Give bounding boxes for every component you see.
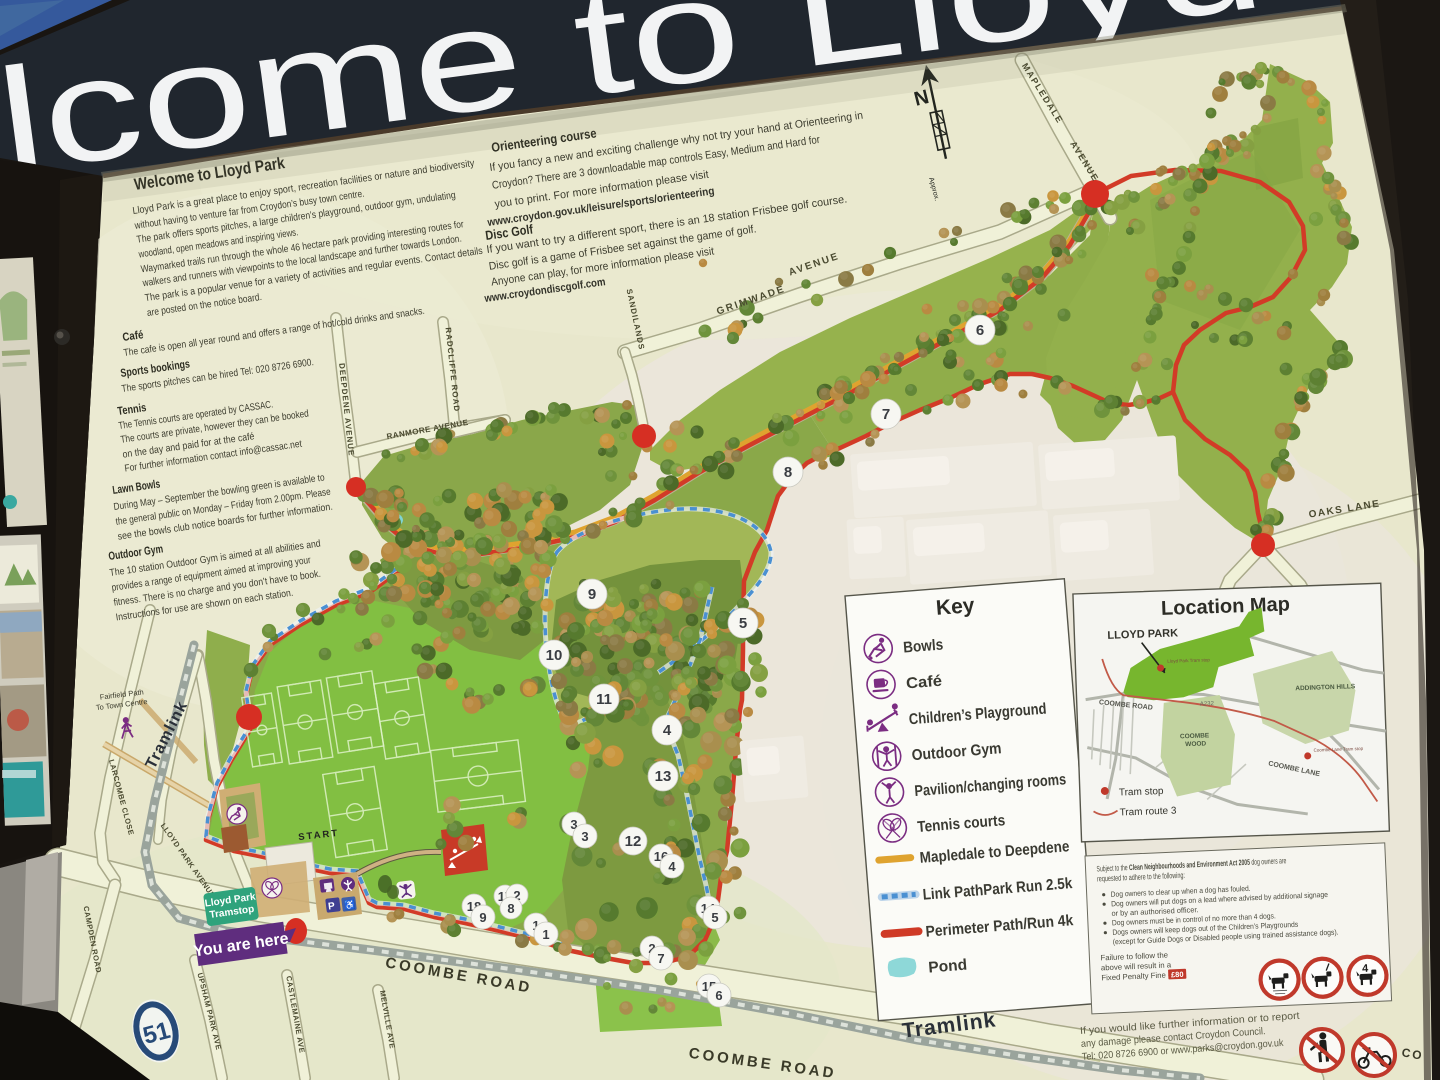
svg-text:WOOD: WOOD bbox=[1185, 740, 1206, 748]
svg-text:5: 5 bbox=[739, 615, 747, 632]
svg-text:Location Map: Location Map bbox=[1161, 593, 1291, 619]
svg-text:7: 7 bbox=[657, 951, 664, 966]
svg-text:COOMBE: COOMBE bbox=[1180, 732, 1210, 740]
svg-text:7: 7 bbox=[882, 406, 890, 423]
svg-text:Pond: Pond bbox=[928, 957, 968, 977]
svg-text:Bowls: Bowls bbox=[903, 636, 944, 656]
svg-text:5: 5 bbox=[711, 910, 718, 925]
svg-text:9: 9 bbox=[588, 586, 596, 603]
svg-text:£80: £80 bbox=[1171, 970, 1184, 980]
svg-text:8: 8 bbox=[784, 464, 792, 481]
svg-text:4: 4 bbox=[663, 722, 672, 739]
svg-text:13: 13 bbox=[655, 768, 672, 785]
svg-text:1: 1 bbox=[542, 927, 549, 942]
svg-text:8: 8 bbox=[507, 901, 514, 916]
svg-text:3: 3 bbox=[581, 829, 588, 844]
svg-text:10: 10 bbox=[546, 647, 563, 664]
svg-text:6: 6 bbox=[715, 988, 722, 1003]
svg-text:12: 12 bbox=[625, 833, 642, 850]
svg-text:LLOYD PARK: LLOYD PARK bbox=[1107, 627, 1178, 641]
svg-text:Tram stop: Tram stop bbox=[1119, 786, 1164, 799]
svg-text:Tram route 3: Tram route 3 bbox=[1119, 806, 1177, 819]
svg-text:Café: Café bbox=[905, 673, 943, 693]
svg-text:9: 9 bbox=[479, 910, 486, 925]
svg-text:♿: ♿ bbox=[343, 898, 355, 910]
svg-text:Key: Key bbox=[935, 594, 976, 620]
svg-text:4: 4 bbox=[668, 859, 676, 874]
svg-text:6: 6 bbox=[976, 322, 984, 339]
svg-text:A232: A232 bbox=[1200, 701, 1215, 708]
svg-text:11: 11 bbox=[596, 691, 612, 708]
